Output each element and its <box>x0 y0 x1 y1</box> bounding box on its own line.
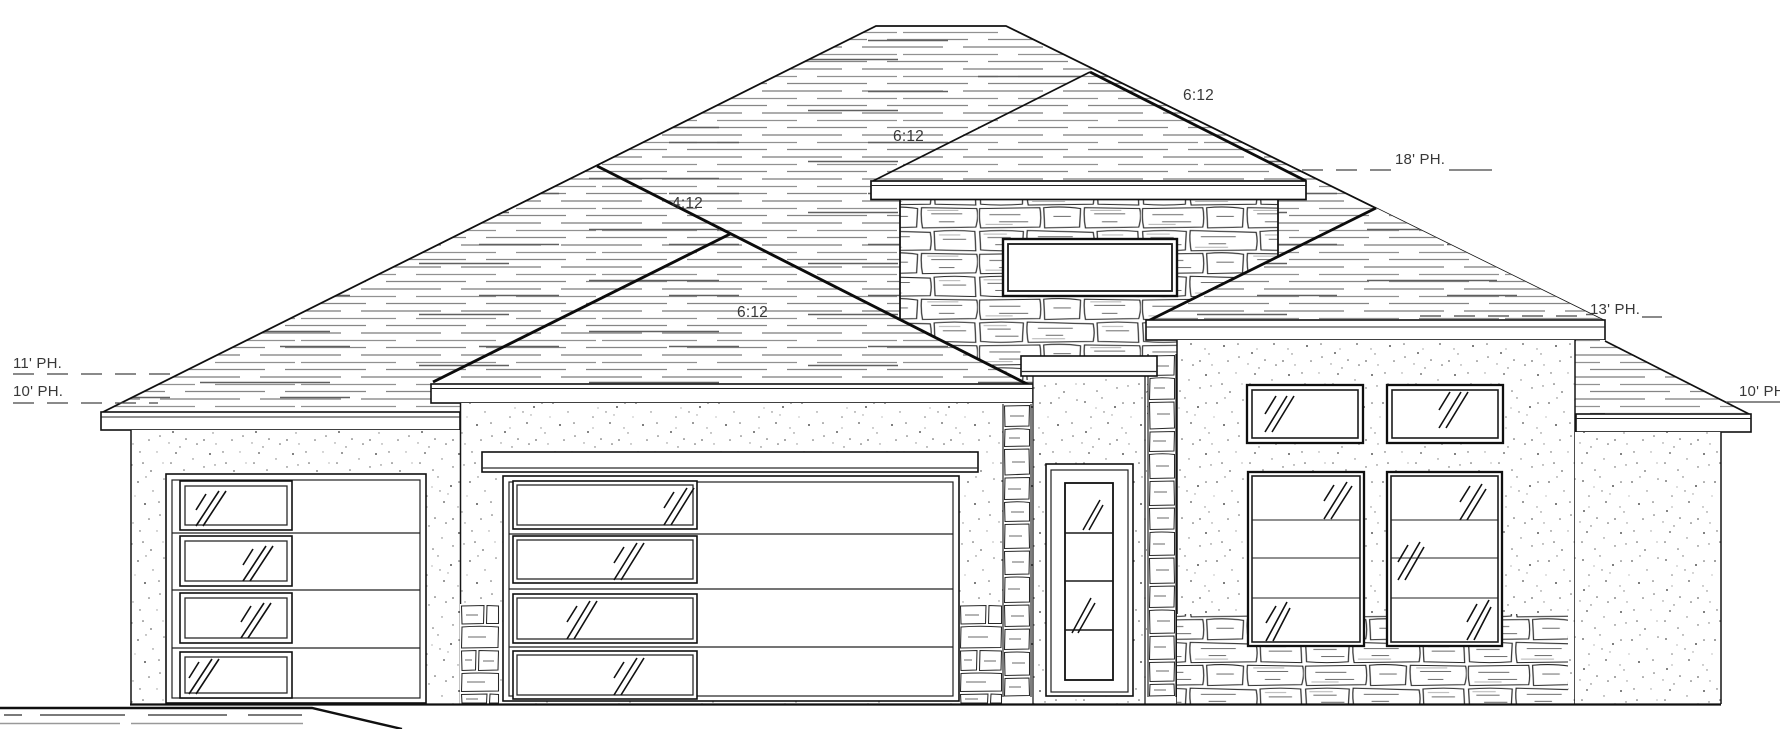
svg-text:10' PH: 10' PH <box>1739 383 1780 400</box>
svg-text:6:12: 6:12 <box>893 128 924 145</box>
svg-text:6:12: 6:12 <box>1183 87 1214 104</box>
svg-text:4:12: 4:12 <box>672 195 703 212</box>
svg-text:10' PH.: 10' PH. <box>13 383 63 400</box>
svg-text:13' PH.: 13' PH. <box>1590 301 1640 318</box>
svg-text:6:12: 6:12 <box>737 304 768 321</box>
svg-text:11' PH.: 11' PH. <box>13 355 62 372</box>
svg-text:18' PH.: 18' PH. <box>1395 151 1445 168</box>
